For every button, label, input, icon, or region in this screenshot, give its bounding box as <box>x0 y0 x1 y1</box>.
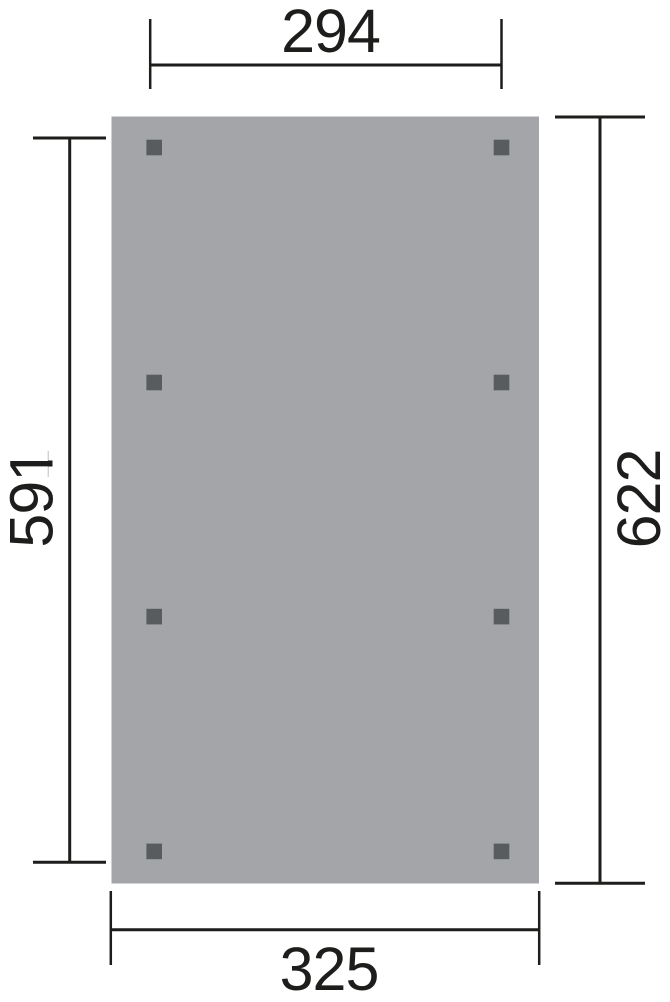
svg-text:294: 294 <box>281 0 380 65</box>
svg-text:622: 622 <box>605 450 670 549</box>
svg-text:325: 325 <box>280 935 379 1002</box>
svg-text:591: 591 <box>0 449 66 548</box>
